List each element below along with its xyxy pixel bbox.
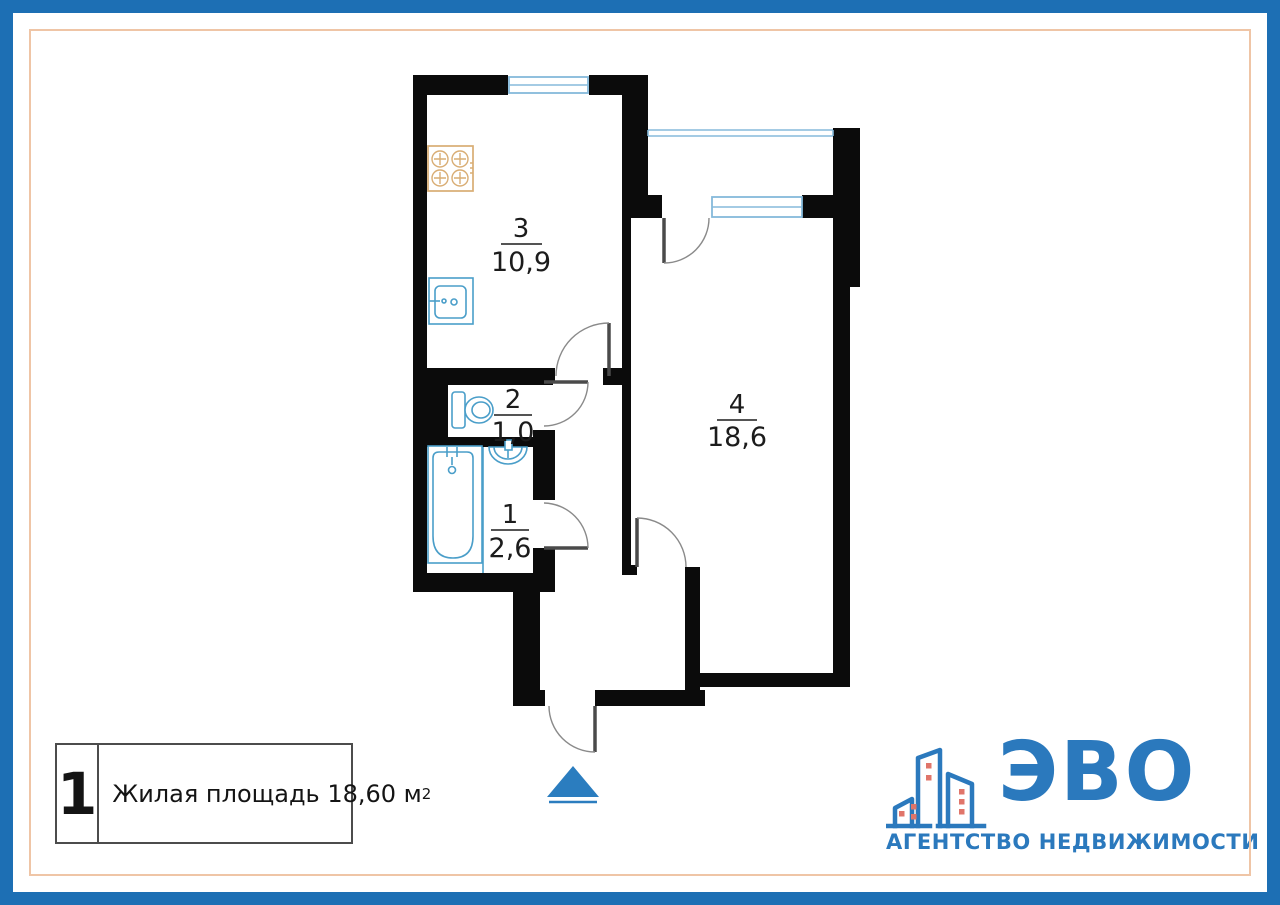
wall-segment bbox=[802, 195, 835, 218]
room-area: 10,9 bbox=[491, 247, 551, 278]
room-label-living-room: 4 18,6 bbox=[707, 390, 767, 453]
wall-segment bbox=[603, 368, 631, 385]
wall-segment bbox=[622, 565, 637, 575]
toilet-door bbox=[544, 382, 588, 426]
living-room-door bbox=[637, 518, 686, 567]
building-windows bbox=[899, 763, 965, 820]
wall-segment bbox=[622, 195, 662, 218]
room-area: 1,0 bbox=[492, 417, 535, 448]
wall-segment bbox=[513, 583, 540, 706]
stove-icon bbox=[428, 146, 473, 191]
living-room-window-icon bbox=[712, 197, 802, 217]
kitchen-door bbox=[556, 323, 609, 376]
balcony-glazing-icon bbox=[648, 130, 833, 136]
balcony-door bbox=[664, 218, 709, 263]
wall-segment bbox=[622, 218, 631, 567]
entrance-door bbox=[549, 706, 595, 752]
wall-segment bbox=[413, 75, 427, 592]
room-number: 3 bbox=[513, 214, 530, 244]
bathtub-icon bbox=[428, 446, 483, 573]
agency-logo: ЭВО АГЕНТСТВО НЕДВИЖИМОСТИ bbox=[886, 740, 1220, 860]
toilet-icon bbox=[452, 392, 493, 428]
wall-segment bbox=[685, 567, 700, 690]
bathroom-door bbox=[544, 503, 588, 548]
room-area: 2,6 bbox=[489, 533, 532, 564]
wall-segment bbox=[595, 690, 705, 706]
walls bbox=[413, 75, 860, 706]
room-area: 18,6 bbox=[707, 422, 767, 453]
living-area-label: Жилая площадь 18,60 м2 bbox=[99, 745, 431, 842]
room-number: 2 bbox=[505, 385, 522, 415]
wall-segment bbox=[833, 128, 860, 287]
wall-segment bbox=[413, 75, 508, 95]
kitchen-sink-icon bbox=[429, 278, 473, 324]
wall-segment bbox=[533, 368, 555, 382]
living-area-text: Жилая площадь 18,60 м bbox=[112, 780, 421, 808]
kitchen-window-icon bbox=[509, 77, 588, 93]
buildings-icon bbox=[886, 741, 988, 829]
wall-segment bbox=[695, 673, 850, 687]
wall-segment bbox=[427, 368, 448, 437]
room-number: 4 bbox=[729, 390, 746, 420]
legend-box: 1 Жилая площадь 18,60 м2 bbox=[55, 743, 353, 844]
wall-segment bbox=[833, 287, 850, 687]
wall-segment bbox=[533, 430, 555, 500]
room-label-bathroom: 1 2,6 bbox=[489, 500, 532, 564]
logo-name: ЭВО bbox=[998, 732, 1196, 814]
room-number: 1 bbox=[502, 500, 519, 530]
room-label-toilet: 2 1,0 bbox=[492, 385, 535, 448]
entrance-arrow-icon bbox=[547, 766, 599, 802]
wall-segment bbox=[513, 690, 545, 706]
wall-segment bbox=[622, 75, 648, 195]
room-label-kitchen: 3 10,9 bbox=[491, 214, 551, 278]
logo-subtitle: АГЕНТСТВО НЕДВИЖИМОСТИ bbox=[886, 830, 1220, 854]
unit-number: 1 bbox=[57, 745, 99, 842]
